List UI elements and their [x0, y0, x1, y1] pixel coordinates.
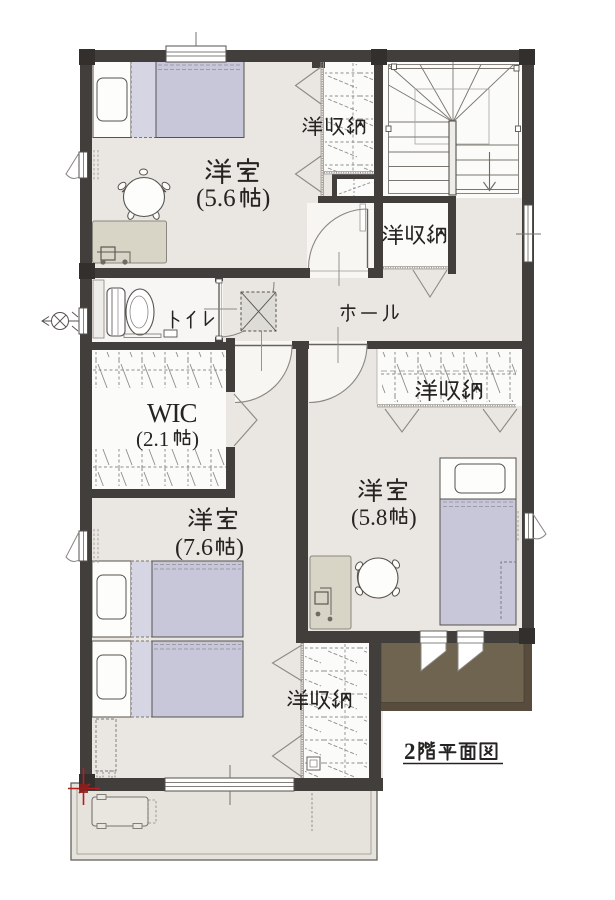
- svg-text:): ): [192, 427, 199, 451]
- svg-text:2: 2: [404, 739, 416, 764]
- svg-text:(7.6: (7.6: [175, 535, 213, 561]
- svg-text:(2.1: (2.1: [136, 427, 169, 451]
- svg-text:): ): [236, 535, 244, 561]
- svg-text:(5.6: (5.6: [196, 185, 236, 212]
- svg-text:): ): [262, 185, 270, 212]
- svg-text:): ): [409, 505, 417, 530]
- svg-text:WIC: WIC: [147, 398, 196, 428]
- svg-text:(5.8: (5.8: [351, 505, 387, 530]
